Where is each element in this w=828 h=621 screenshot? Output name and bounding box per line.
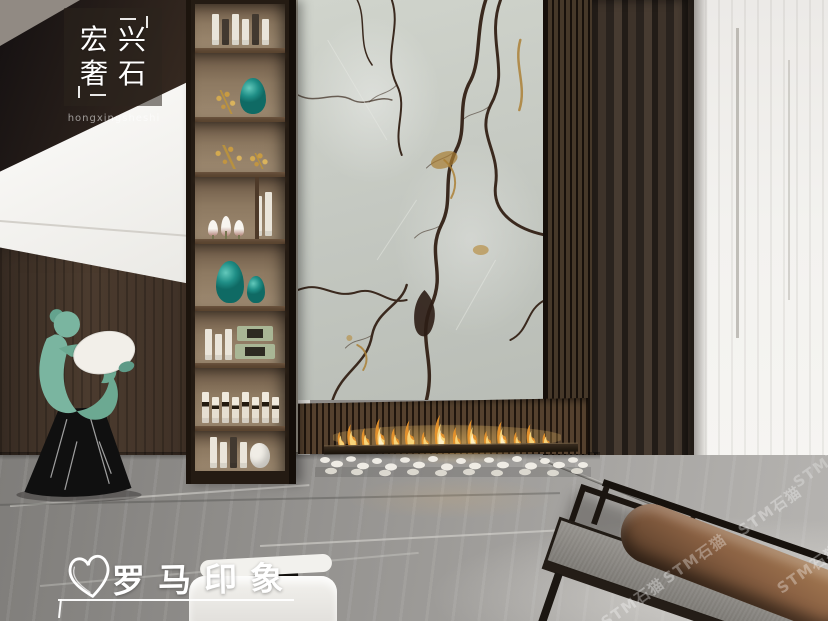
book <box>220 442 227 468</box>
book <box>252 397 259 423</box>
white-pebbles <box>315 451 591 477</box>
logo-text-row1: 宏兴 <box>70 24 156 56</box>
book <box>232 397 239 423</box>
shelf-cell-books <box>195 4 285 48</box>
curtain <box>592 0 694 508</box>
green-gift-box <box>235 344 275 359</box>
shelf-cell-bottom <box>195 431 285 471</box>
gift-box-stack <box>235 326 275 360</box>
celadon-sculpture <box>6 290 158 502</box>
shelf-divider <box>255 177 259 239</box>
book <box>240 442 247 468</box>
logo-ornament <box>146 16 148 28</box>
book <box>202 392 209 423</box>
bookshelf <box>186 0 296 484</box>
book <box>272 397 279 423</box>
tulip-flower <box>208 220 218 236</box>
marble-feature-wall <box>298 0 545 400</box>
bench-leg <box>538 572 562 621</box>
book <box>225 329 232 360</box>
logo-text-row2: 奢石 <box>70 58 156 90</box>
interior-render: 宏兴 奢石 hongxingsheshi 罗马印象 STM石猫 STM石猫 ST… <box>0 0 828 621</box>
book <box>242 19 249 45</box>
book <box>210 437 217 468</box>
book <box>212 14 219 45</box>
logo-ornament <box>120 18 136 20</box>
teal-vase <box>240 78 266 114</box>
book <box>215 334 222 360</box>
caption-underline <box>58 599 294 601</box>
teal-gourd-vase <box>216 261 244 303</box>
logo-ornament <box>90 94 106 96</box>
book <box>212 397 219 423</box>
window-mullion <box>736 28 739 338</box>
tulip-flower <box>234 220 244 236</box>
book <box>262 19 269 45</box>
book <box>230 437 237 468</box>
book <box>252 14 259 45</box>
shelf-cell-gold-decor <box>195 122 285 172</box>
green-gift-box <box>237 326 273 341</box>
gold-branch <box>212 145 246 169</box>
caption-text: 罗马印象 <box>112 551 297 602</box>
book <box>222 392 229 423</box>
logo-subtext: hongxingsheshi <box>62 113 166 124</box>
teal-gourd-vase-small <box>247 276 265 303</box>
marble-veins <box>298 0 545 400</box>
book <box>265 192 272 236</box>
white-sculptural-object <box>250 443 270 468</box>
brand-logo: 宏兴 奢石 <box>64 8 162 106</box>
sheer-shadow <box>692 0 708 520</box>
tulip-flower <box>221 216 231 236</box>
logo-ornament <box>78 86 80 98</box>
shelf-cell-boxes <box>195 311 285 363</box>
shelf-cell-striped-books <box>195 368 285 426</box>
shelf-cell-gourd-vases <box>195 244 285 306</box>
book <box>232 14 239 45</box>
book <box>262 392 269 423</box>
gold-branch <box>215 90 237 114</box>
book <box>242 392 249 423</box>
shelf-cell-tulips <box>195 177 285 239</box>
shelf-cell-vase <box>195 53 285 117</box>
fireplace-flames <box>333 409 561 447</box>
book <box>205 329 212 360</box>
gold-branch <box>249 153 269 169</box>
book <box>222 19 229 45</box>
window-mullion-2 <box>788 60 790 300</box>
